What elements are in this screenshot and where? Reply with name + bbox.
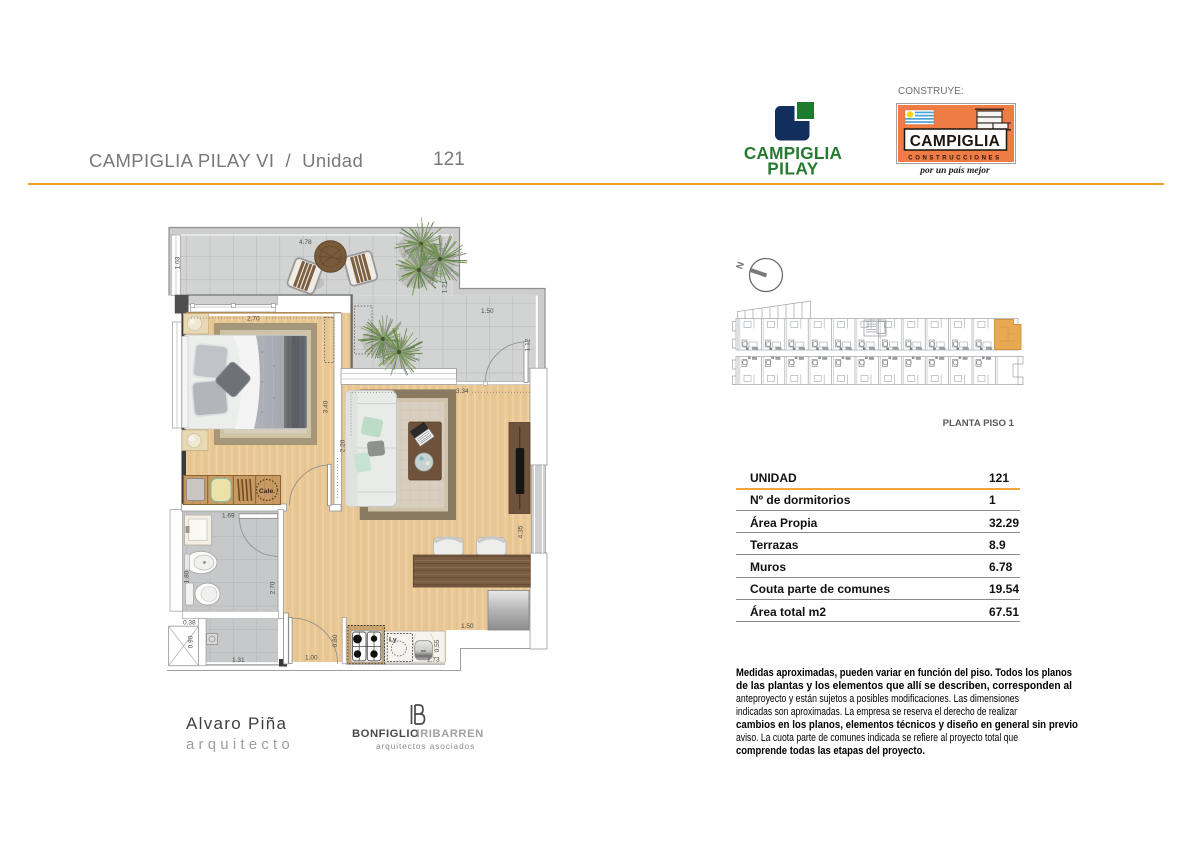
svg-text:3.34: 3.34 [456,388,469,395]
svg-text:1.50: 1.50 [461,623,474,630]
svg-text:2.20: 2.20 [340,439,347,452]
svg-text:2.70: 2.70 [270,581,277,594]
svg-text:arquitectos asociados: arquitectos asociados [376,741,475,751]
svg-text:1.00: 1.00 [305,655,318,662]
svg-text:1.03: 1.03 [175,256,182,269]
svg-text:1.50: 1.50 [481,308,494,315]
svg-text:0.38: 0.38 [183,620,196,627]
svg-text:1.69: 1.69 [222,513,235,520]
svg-text:4.78: 4.78 [299,239,312,246]
svg-text:0.90: 0.90 [188,635,195,648]
svg-text:BONFIGLIO: BONFIGLIO [352,728,419,740]
svg-text:1.31: 1.31 [232,657,245,664]
svg-text:PLANTA PISO 1: PLANTA PISO 1 [943,418,1015,429]
svg-text:1.21: 1.21 [442,280,449,293]
svg-text:4.35: 4.35 [518,525,525,538]
svg-text:N: N [734,260,747,270]
svg-text:IRIBARREN: IRIBARREN [417,728,484,740]
svg-text:0.80: 0.80 [332,634,339,647]
svg-text:1.73: 1.73 [427,657,440,664]
svg-text:2.70: 2.70 [247,316,260,323]
svg-text:Cale.: Cale. [259,488,275,495]
svg-text:0.55: 0.55 [434,639,441,652]
svg-text:1.12: 1.12 [525,338,532,351]
svg-text:Ly: Ly [389,637,397,644]
svg-text:3.40: 3.40 [323,400,330,413]
svg-text:1.80: 1.80 [184,570,191,583]
